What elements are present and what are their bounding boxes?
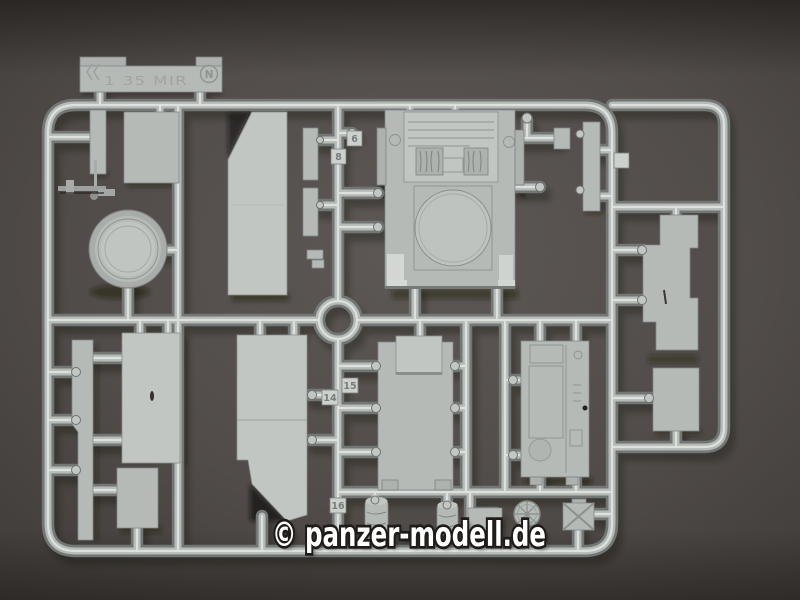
tab-molded-label: 1 35 MIR — [104, 73, 188, 88]
sprue-photo: 1 35 MIR N — [0, 0, 800, 600]
wheel-disc-part — [89, 210, 167, 288]
turret-ring — [415, 190, 491, 266]
watermark-text: © panzer-modell.de — [272, 515, 546, 555]
small-panel-part — [653, 368, 699, 431]
cap-block-part — [554, 128, 570, 149]
x-braced-box-part — [563, 499, 594, 530]
detail-panel-part — [521, 341, 589, 485]
watermark: © panzer-modell.de © panzer-modell.de — [272, 515, 549, 558]
part-tag: 14 — [323, 393, 337, 404]
small-strip-part — [303, 128, 318, 180]
photo: 1 35 MIR N — [0, 0, 800, 600]
hull-top-part — [377, 110, 524, 289]
part-tag: 15 — [343, 381, 356, 392]
part-tag: 8 — [335, 152, 342, 163]
sprue-letter-badge: N — [205, 69, 214, 81]
part-tag: 16 — [331, 501, 345, 512]
left-panel-part — [122, 333, 180, 463]
hull-floor-part — [378, 336, 453, 490]
right-strip-part — [583, 122, 600, 211]
narrow-strip-part — [90, 110, 106, 174]
small-strip-part — [303, 188, 318, 236]
small-box-part — [117, 468, 158, 528]
rectangular-box-part — [124, 112, 179, 183]
part-tag: 6 — [351, 134, 358, 145]
blank-tag — [614, 153, 629, 168]
